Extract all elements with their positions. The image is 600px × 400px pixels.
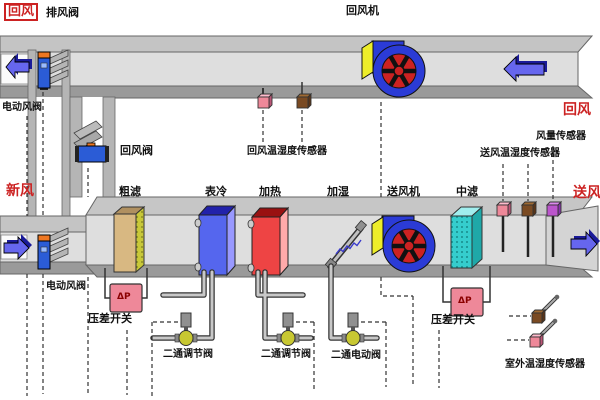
label-medium-filter: 中滤 (456, 186, 478, 198)
label-motor-damper-bottom: 电动风阀 (46, 281, 86, 292)
heating-coil (248, 208, 288, 275)
label-supply-fan: 送风机 (387, 186, 420, 198)
label-dp-switch-left: 压差开关 (88, 313, 132, 325)
label-heating-coil: 加热 (259, 186, 281, 198)
return-duct (0, 36, 592, 98)
label-dp-switch-right: 压差开关 (431, 314, 475, 326)
cooling-coil (195, 206, 235, 275)
label-outdoor-temp-humidity-sensor: 室外温湿度传感器 (505, 359, 585, 370)
hvac-diagram: 回风 排风阀 回风机 回风 电动风阀 回风阀 新风 粗滤 表冷 加热 加湿 送风… (0, 0, 600, 400)
coil-nozzle (195, 263, 201, 271)
dp-symbol-right: ΔP (458, 297, 472, 307)
label-supply-air: 送风 (573, 186, 600, 201)
two-way-regulating-valve-2 (277, 313, 299, 346)
medium-filter (451, 207, 482, 268)
label-humidifier: 加湿 (327, 186, 349, 198)
dp-symbol-left: ΔP (117, 293, 131, 303)
two-way-motor-valve (342, 313, 364, 346)
ahu-duct (86, 197, 598, 277)
label-return-air-top-left: 回风 (4, 3, 38, 21)
label-exhaust-damper: 排风阀 (46, 7, 79, 19)
label-return-damper: 回风阀 (120, 145, 153, 157)
label-airflow-sensor: 风量传感器 (536, 131, 586, 142)
label-two-way-regulating-valve-2: 二通调节阀 (261, 349, 311, 360)
label-fresh-air: 新风 (6, 184, 34, 199)
label-return-air-right: 回风 (563, 103, 591, 118)
coil-nozzle (248, 220, 254, 228)
label-two-way-motor-valve: 二通电动阀 (331, 350, 381, 361)
label-two-way-regulating-valve-1: 二通调节阀 (163, 349, 213, 360)
diagram-canvas (0, 0, 600, 400)
coarse-filter (114, 207, 144, 272)
label-cooling-coil: 表冷 (205, 186, 227, 198)
label-return-temp-humidity-sensor: 回风温湿度传感器 (247, 146, 327, 157)
label-motor-damper-top: 电动风阀 (2, 102, 42, 113)
label-coarse-filter: 粗滤 (119, 186, 141, 198)
label-return-fan: 回风机 (346, 5, 379, 17)
coil-nozzle (195, 219, 201, 227)
two-way-regulating-valve-1 (175, 313, 197, 346)
coil-nozzle (248, 264, 254, 272)
label-supply-temp-humidity-sensor: 送风温湿度传感器 (480, 148, 560, 159)
